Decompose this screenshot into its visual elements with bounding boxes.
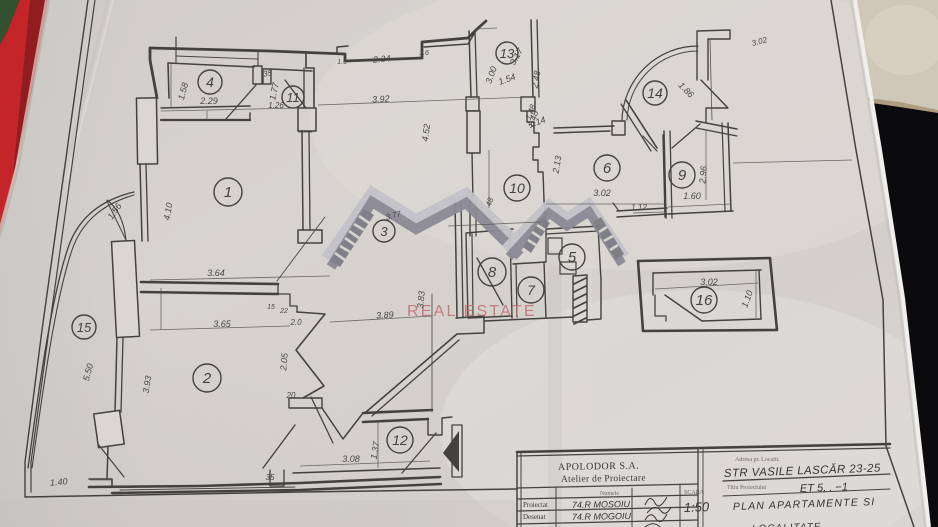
svg-text:14: 14 bbox=[647, 85, 663, 101]
svg-text:74.R MOGOIU: 74.R MOGOIU bbox=[572, 511, 632, 522]
svg-text:2.05: 2.05 bbox=[278, 352, 290, 372]
svg-text:9: 9 bbox=[678, 167, 687, 184]
svg-text:Atelier de Proiectare: Atelier de Proiectare bbox=[561, 474, 646, 485]
svg-text:10: 10 bbox=[509, 180, 525, 196]
svg-text:1:50: 1:50 bbox=[684, 499, 711, 515]
svg-text:Proiectat: Proiectat bbox=[523, 501, 548, 509]
svg-text:20: 20 bbox=[286, 391, 296, 400]
svg-text:3.08: 3.08 bbox=[342, 454, 360, 464]
svg-text:2.96: 2.96 bbox=[697, 166, 709, 185]
svg-text:4: 4 bbox=[206, 74, 214, 90]
svg-text:74.R MOSOIU: 74.R MOSOIU bbox=[572, 499, 631, 510]
svg-text:1.6: 1.6 bbox=[419, 50, 429, 57]
svg-text:4.52: 4.52 bbox=[420, 123, 432, 142]
svg-text:REAL ESTATE: REAL ESTATE bbox=[407, 303, 537, 320]
svg-text:3.83: 3.83 bbox=[415, 291, 426, 309]
svg-text:12: 12 bbox=[392, 432, 408, 448]
svg-text:2.29: 2.29 bbox=[199, 96, 218, 106]
svg-text:1.6: 1.6 bbox=[337, 59, 347, 66]
svg-text:11: 11 bbox=[286, 90, 300, 105]
svg-text:2.34: 2.34 bbox=[372, 53, 391, 65]
svg-text:1: 1 bbox=[224, 184, 232, 201]
svg-text:2: 2 bbox=[202, 370, 212, 387]
svg-text:15: 15 bbox=[77, 320, 92, 335]
svg-text:Desenat: Desenat bbox=[523, 513, 546, 521]
svg-text:35: 35 bbox=[266, 473, 275, 482]
svg-text:22: 22 bbox=[279, 308, 288, 315]
svg-text:3.64: 3.64 bbox=[207, 268, 225, 278]
svg-text:Adresa pr. Localit.: Adresa pr. Localit. bbox=[735, 457, 780, 463]
svg-text:1.60: 1.60 bbox=[683, 191, 701, 201]
svg-text:16: 16 bbox=[696, 292, 713, 309]
svg-text:6: 6 bbox=[603, 160, 612, 177]
svg-text:5: 5 bbox=[568, 249, 577, 266]
svg-text:15: 15 bbox=[267, 304, 275, 311]
svg-text:1.40: 1.40 bbox=[50, 476, 68, 487]
svg-text:ET 5, . −1: ET 5, . −1 bbox=[800, 481, 848, 495]
svg-text:SCARA: SCARA bbox=[684, 490, 705, 496]
svg-text:Numele: Numele bbox=[600, 491, 619, 497]
svg-text:7: 7 bbox=[527, 282, 536, 298]
svg-text:Titlu Proiectului: Titlu Proiectului bbox=[727, 485, 767, 491]
svg-text:8: 8 bbox=[488, 264, 497, 281]
svg-text:3.02: 3.02 bbox=[593, 188, 611, 198]
svg-text:3: 3 bbox=[380, 224, 388, 239]
svg-text:APOLODOR S.A.: APOLODOR S.A. bbox=[558, 461, 639, 473]
svg-text:2.0: 2.0 bbox=[289, 318, 302, 327]
